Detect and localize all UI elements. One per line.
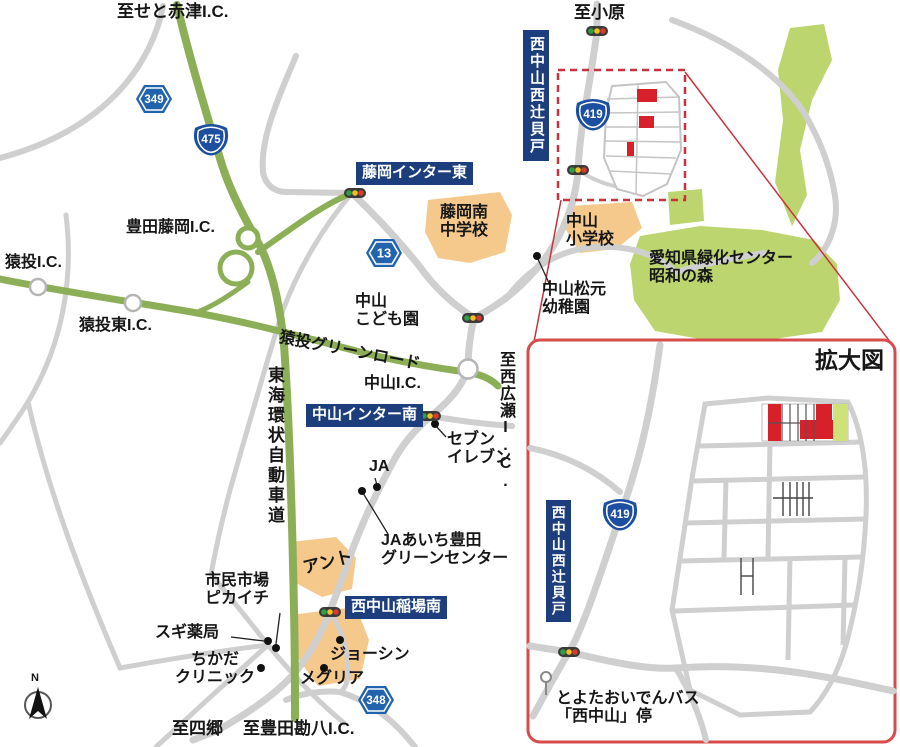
north-arrow	[25, 687, 51, 719]
poi-dot-seven-eleven	[431, 420, 439, 428]
inset-map: 419	[528, 340, 895, 742]
signal-inaba-minami	[319, 607, 341, 617]
inset-signal	[558, 647, 580, 657]
poi-dot-chikada	[257, 664, 265, 672]
sign-inaba-minami: 西中山稲場南	[345, 596, 447, 619]
route-475-shield: 475	[194, 124, 228, 156]
local-road-4	[28, 402, 120, 668]
tokai-kanjo-expressway	[177, 5, 295, 718]
poi-dot-kindergarten	[533, 252, 541, 260]
route-348-shield: 348	[358, 686, 394, 714]
route-349-road	[0, 6, 163, 158]
sugi-pharmacy-label: スギ薬局	[155, 624, 219, 642]
fujioka-ic-loop-large	[220, 252, 252, 284]
route-475-number: 475	[201, 134, 221, 146]
ic-ramp	[200, 282, 248, 311]
sign-fujioka-inter-east: 藤岡インター東	[356, 162, 473, 185]
lot-green	[833, 404, 848, 441]
lot-red-3	[816, 404, 832, 439]
route-13-number: 13	[377, 246, 391, 261]
poi-dot-ja	[373, 483, 381, 491]
signal-kodomoen	[462, 313, 484, 323]
dest-shigo: 至四郷	[172, 719, 223, 738]
dest-kampachi: 至豊田勘八I.C.	[243, 719, 354, 738]
local-road-3	[0, 215, 68, 443]
inset-title: 拡大図	[815, 347, 884, 373]
signal-nishi-tsujikaido	[567, 165, 589, 175]
poi-dot-joshin	[336, 636, 344, 644]
joshin-label: ジョーシン	[330, 646, 410, 664]
greenification-center-label: 愛知県緑化センター 昭和の森	[649, 250, 793, 286]
poi-dot-pikaichi	[272, 644, 280, 652]
sign-nishi-tsujikaido: 西中山西辻貝戸	[523, 30, 549, 161]
north-access-road	[263, 56, 352, 193]
kodomoen-label: 中山 こども園	[355, 293, 419, 329]
dest-nishi-hirose: 至西広瀬I.C.	[493, 351, 517, 491]
sign-nakayama-inter-minami: 中山インター南	[306, 404, 423, 427]
sanage-greenroad	[0, 279, 498, 386]
signal-obara	[586, 26, 608, 36]
route-419-number: 419	[583, 109, 602, 121]
chikada-clinic-label: ちかだ クリニック	[172, 651, 258, 687]
fujioka-minami-school-label: 藤岡南 中学校	[440, 204, 488, 240]
sanage-ic-circle	[30, 279, 46, 295]
seven-eleven-label: セブン イレブン	[447, 431, 511, 467]
map-canvas: 349 475 13 419 348	[0, 0, 900, 747]
tokai-kanjo-label: 東海環状自動車道	[262, 366, 287, 526]
poi-dot-ja-green-center	[358, 487, 366, 495]
fujioka-ic-loop-small	[238, 228, 258, 248]
megria-label: メグリア	[300, 670, 364, 688]
nakayama-ic-label: 中山I.C.	[364, 375, 421, 393]
route-348-number: 348	[366, 695, 386, 707]
sanage-higashi-ic-circle	[125, 295, 141, 311]
dest-obara: 至小原	[574, 3, 625, 22]
nakayama-elementary-label: 中山 小学校	[566, 213, 614, 249]
sanage-ic-label: 猿投I.C.	[5, 254, 62, 272]
sanage-higashi-ic-label: 猿投東I.C.	[79, 317, 152, 335]
site-parcels-overview	[604, 82, 681, 196]
kindergarten-label: 中山松元 幼稚園	[542, 281, 606, 317]
nakayama-ic-circle	[459, 360, 478, 379]
inset-bus-stop-label: とよたおいでんバス 「西中山」停	[556, 690, 700, 726]
poi-dot-sugi	[264, 637, 272, 645]
shimin-ichiba-label: 市民市場 ピカイチ	[205, 572, 269, 608]
north-label: N	[31, 672, 39, 684]
route-349-number: 349	[144, 94, 163, 106]
route-map: 349 475 13 419 348	[0, 0, 900, 747]
ja-green-center-label: JAあいち豊田 グリーンセンター	[381, 532, 508, 568]
ic-connector-road	[258, 194, 350, 252]
ja-label: JA	[369, 458, 389, 476]
inset-route-419-number: 419	[610, 509, 629, 521]
inset-lot-strips	[762, 404, 848, 441]
signal-fujioka-inter-east	[344, 188, 366, 198]
toyota-fujioka-ic-label: 豊田藤岡I.C.	[126, 219, 215, 237]
route-349-shield: 349	[136, 85, 172, 113]
dest-seto-akatsu: 至せと赤津I.C.	[117, 2, 228, 21]
inset-sign-nishi-tsujikaido: 西中山西辻貝戸	[546, 500, 571, 622]
